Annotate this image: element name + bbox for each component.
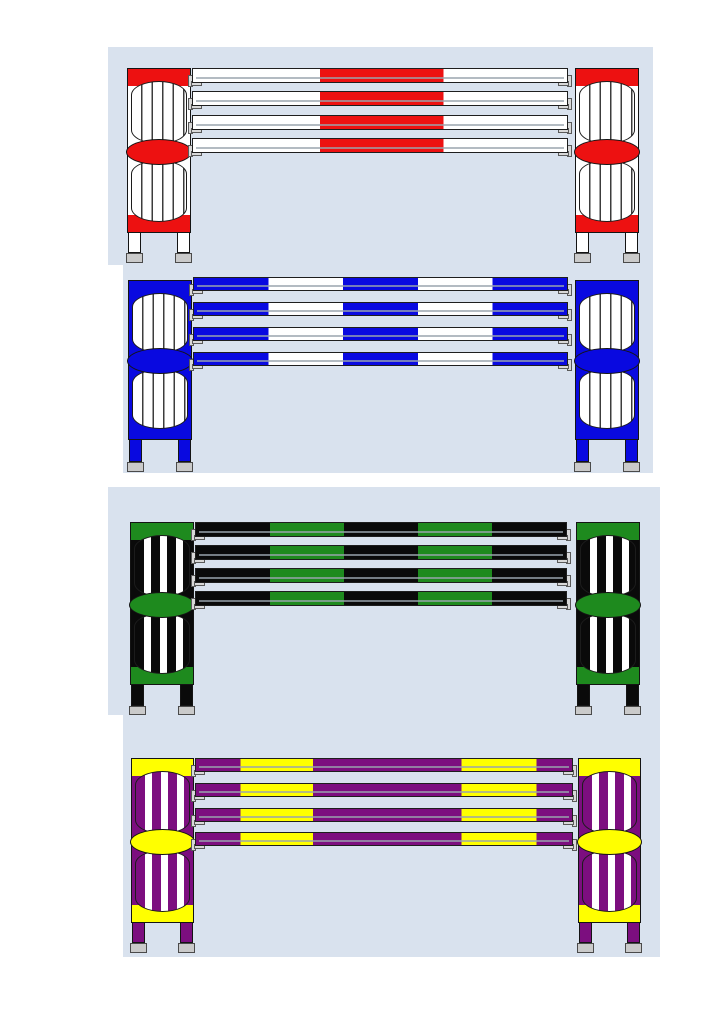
standard-right-foot-back [625,943,642,953]
standard-left-foot-front [130,943,147,953]
standard-right-leg-back [625,440,638,462]
standard-left-foot-back [175,253,192,263]
standard-center-oval [575,592,641,618]
standard-left-leg-front [128,233,141,253]
rail-3 [195,808,573,822]
rail-3 [193,327,568,341]
rail-1 [195,522,567,537]
standard-left-foot-back [178,943,195,953]
standard-right-foot-back [623,462,640,472]
rail-4 [195,591,567,606]
rail-3 [195,568,567,583]
standard-slat-window-upper [579,81,635,144]
standard-slat-window-upper [134,535,190,597]
standard-slat-window-upper [131,81,187,144]
standard-slat-window-upper [582,771,637,834]
rail-1 [192,68,568,83]
standard-right-foot-front [574,462,591,472]
rail-4 [195,832,573,846]
standard-left-leg-front [132,923,145,943]
standard-right [575,68,639,233]
standard-left [127,68,191,233]
standard-slat-window-upper [132,293,188,353]
standard-slat-window-upper [579,293,635,353]
standard-right [576,522,640,685]
standard-slat-window-lower [582,850,637,913]
standard-left [128,280,192,440]
standard-right-leg-front [576,440,589,462]
standard-right-leg-back [626,685,639,706]
standard-center-oval [127,348,193,374]
standard-right-foot-front [577,943,594,953]
rail-1 [193,277,568,291]
standard-right-foot-back [623,253,640,263]
standard-left-foot-front [129,706,146,715]
standard-center-oval [126,139,192,165]
standard-left-foot-front [127,462,144,472]
standard-center-oval [129,592,195,618]
standard-center-oval [130,829,195,855]
background-panel-blue-white [123,265,653,473]
standard-left-leg-front [129,440,142,462]
standard-left [131,758,194,923]
standard-right [575,280,639,440]
standard-right-leg-front [579,923,592,943]
rail-3 [192,115,568,130]
standard-slat-window-upper [135,771,190,834]
standard-center-oval [574,348,640,374]
rail-2 [193,302,568,316]
standard-slat-window-lower [134,613,190,675]
standard-center-oval [574,139,640,165]
standard-left-leg-back [180,923,193,943]
standard-left-leg-back [180,685,193,706]
standard-left-foot-back [176,462,193,472]
standard-left-foot-back [178,706,195,715]
standard-right-foot-front [574,253,591,263]
rail-2 [195,545,567,560]
standard-slat-window-lower [579,160,635,223]
standard-right-leg-back [627,923,640,943]
standard-right-leg-back [625,233,638,253]
standard-slat-window-lower [580,613,636,675]
standard-slat-window-upper [580,535,636,597]
rail-2 [195,783,573,797]
rail-2 [192,91,568,106]
standard-right-foot-back [624,706,641,715]
standard-left-leg-back [177,233,190,253]
standard-left-leg-back [178,440,191,462]
standard-left-foot-front [126,253,143,263]
rail-4 [192,138,568,153]
standard-slat-window-lower [131,160,187,223]
rail-1 [195,758,573,772]
rail-4 [193,352,568,366]
standard-right-leg-front [577,685,590,706]
jump-catalog-page [0,0,723,1024]
standard-right [578,758,641,923]
standard-right-foot-front [575,706,592,715]
standard-slat-window-lower [132,369,188,429]
standard-center-oval [577,829,642,855]
standard-left-leg-front [131,685,144,706]
standard-right-leg-front [576,233,589,253]
standard-slat-window-lower [135,850,190,913]
standard-left [130,522,194,685]
standard-slat-window-lower [579,369,635,429]
